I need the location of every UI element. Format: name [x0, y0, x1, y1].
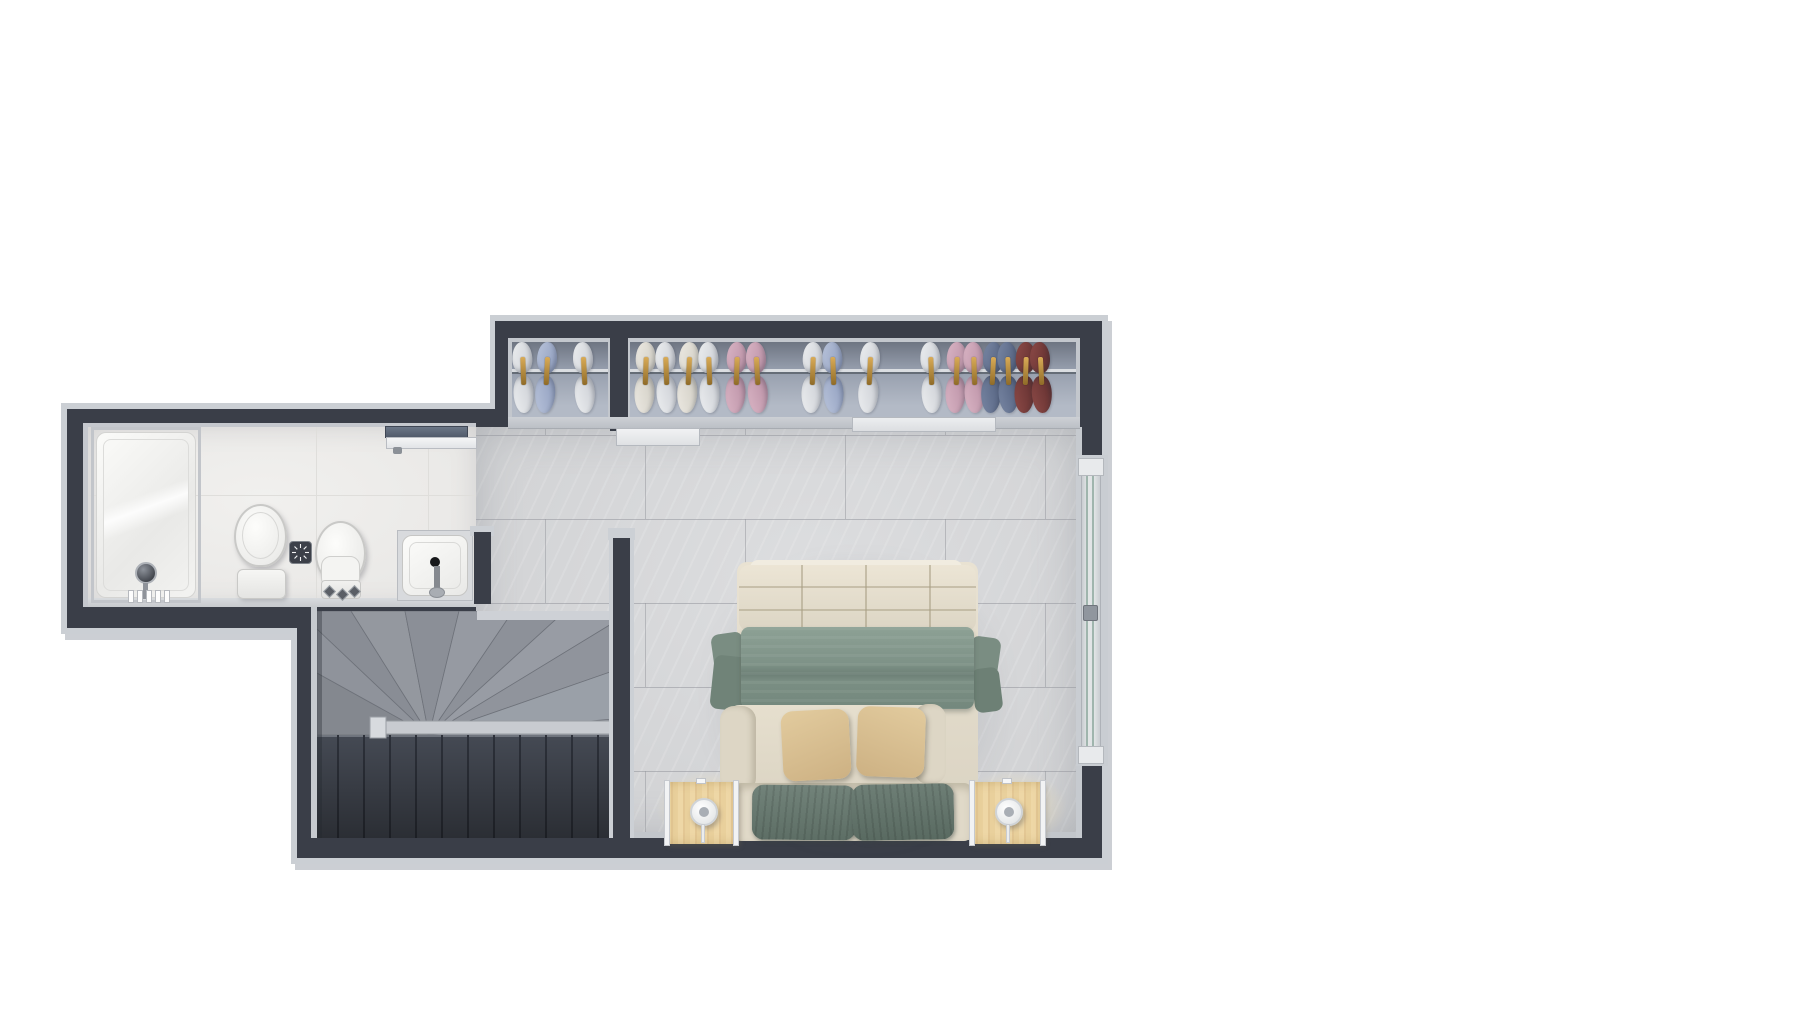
- hanger-hook: [1022, 357, 1028, 385]
- hanger-hook: [971, 357, 977, 385]
- window-handle: [1083, 605, 1098, 621]
- closet-garment: [801, 342, 824, 415]
- closet-garment: [676, 342, 700, 415]
- lamp-center: [699, 807, 709, 817]
- closet-garment: [1029, 342, 1053, 415]
- garment-bottom: [945, 376, 966, 414]
- nightstand-right-rail-a: [969, 780, 975, 846]
- hanger-hook: [989, 357, 995, 385]
- closet-garment: [512, 342, 535, 415]
- closet-sliding-door-left: [616, 428, 700, 446]
- hanger-hook: [685, 357, 691, 385]
- stairwell-west-edge: [311, 607, 317, 838]
- nightstand-right-knob: [1002, 778, 1012, 784]
- garment-top: [963, 342, 984, 374]
- garment-bottom: [699, 376, 720, 414]
- floor-plan: [0, 0, 1820, 1024]
- stairwell: [317, 611, 613, 838]
- garment-bottom: [857, 375, 879, 413]
- stair-newel-post: [370, 717, 386, 738]
- garment-top: [678, 342, 700, 374]
- closet-garment: [1014, 342, 1037, 415]
- garment-top: [920, 342, 941, 374]
- stair-handrail: [375, 721, 611, 734]
- nightstand-left-rail-b: [733, 780, 739, 846]
- pillow-green-right: [852, 783, 955, 841]
- closet-garment: [857, 342, 881, 415]
- hanger-hook: [663, 357, 669, 385]
- window-cap-top: [1078, 458, 1104, 476]
- closet-garment: [572, 342, 596, 415]
- garment-bottom: [574, 375, 596, 413]
- hanger-hook: [753, 357, 759, 385]
- closet-sliding-door-right: [852, 417, 996, 432]
- winder-staircase: [317, 611, 613, 838]
- garment-top: [1029, 342, 1051, 374]
- garment-bottom: [1014, 376, 1035, 414]
- garment-bottom: [634, 376, 655, 414]
- garment-bottom: [1031, 375, 1053, 413]
- garment-top: [802, 342, 823, 374]
- hanger-hook: [928, 357, 934, 385]
- garment-top: [698, 342, 719, 374]
- closet-garment: [655, 342, 678, 415]
- stair-top-sill: [477, 611, 613, 620]
- garment-bottom: [921, 376, 942, 414]
- hanger-hook: [830, 357, 836, 385]
- closet-garment: [963, 342, 986, 415]
- garment-bottom: [534, 375, 556, 413]
- window-cap-bottom: [1078, 746, 1104, 764]
- table-lamp-right: [995, 798, 1023, 826]
- nightstand-right-rail-b: [1040, 780, 1046, 846]
- garment-top: [512, 342, 533, 374]
- closet-garment: [945, 342, 968, 415]
- garment-top: [655, 342, 676, 374]
- garment-top: [859, 342, 881, 374]
- lamp-stem-left: [701, 824, 705, 843]
- hanger-hook: [1037, 357, 1043, 385]
- pillow-green-left: [752, 785, 856, 841]
- closet-garment: [920, 342, 943, 415]
- nightstand-left-rail-a: [664, 780, 670, 846]
- hanger-hook: [580, 357, 586, 385]
- garment-bottom: [676, 375, 698, 413]
- closet-garment: [980, 342, 1004, 415]
- hanger-hook: [642, 357, 648, 385]
- garment-bottom: [725, 376, 746, 414]
- closet-garment: [698, 342, 721, 415]
- garment-top: [572, 342, 594, 374]
- garment-bottom: [980, 375, 1002, 413]
- garment-top: [997, 342, 1018, 374]
- hanger-hook: [809, 357, 815, 385]
- stair-divider-wall: [613, 538, 630, 838]
- pillow-tan-right: [856, 706, 926, 778]
- closet-garment: [634, 342, 657, 415]
- lamp-stem-right: [1006, 824, 1010, 843]
- garment-top: [536, 342, 558, 374]
- closet-garment: [745, 342, 769, 415]
- bed-quilt: [739, 565, 976, 631]
- garment-top: [946, 342, 967, 374]
- garment-bottom: [823, 376, 844, 414]
- garment-bottom: [964, 376, 985, 414]
- garment-bottom: [656, 376, 677, 414]
- garment-top: [635, 342, 656, 374]
- garment-top: [822, 342, 843, 374]
- closet-garment: [997, 342, 1020, 415]
- table-lamp-left: [690, 798, 718, 826]
- garment-bottom: [998, 376, 1019, 414]
- garment-top: [745, 342, 767, 374]
- closet-garment: [725, 342, 748, 415]
- hanger-hook: [953, 357, 959, 385]
- garment-top: [726, 342, 747, 374]
- garment-top: [1015, 342, 1036, 374]
- nightstand-left-knob: [696, 778, 706, 784]
- closet-garment: [534, 342, 558, 415]
- garment-top: [982, 342, 1004, 374]
- bed-blanket: [741, 627, 974, 709]
- closet-garments: [0, 0, 1820, 1024]
- blanket-drape-right-2: [970, 666, 1003, 713]
- garment-bottom: [801, 376, 822, 414]
- pillow-tan-left: [780, 708, 852, 781]
- hanger-hook: [1005, 357, 1011, 385]
- garment-bottom: [747, 375, 769, 413]
- hanger-hook: [706, 357, 712, 385]
- hanger-hook: [733, 357, 739, 385]
- closet-garment: [822, 342, 845, 415]
- lamp-center: [1004, 807, 1014, 817]
- hanger-hook: [543, 357, 549, 385]
- garment-bottom: [513, 376, 534, 414]
- hanger-hook: [520, 357, 526, 385]
- hanger-hook: [866, 357, 872, 385]
